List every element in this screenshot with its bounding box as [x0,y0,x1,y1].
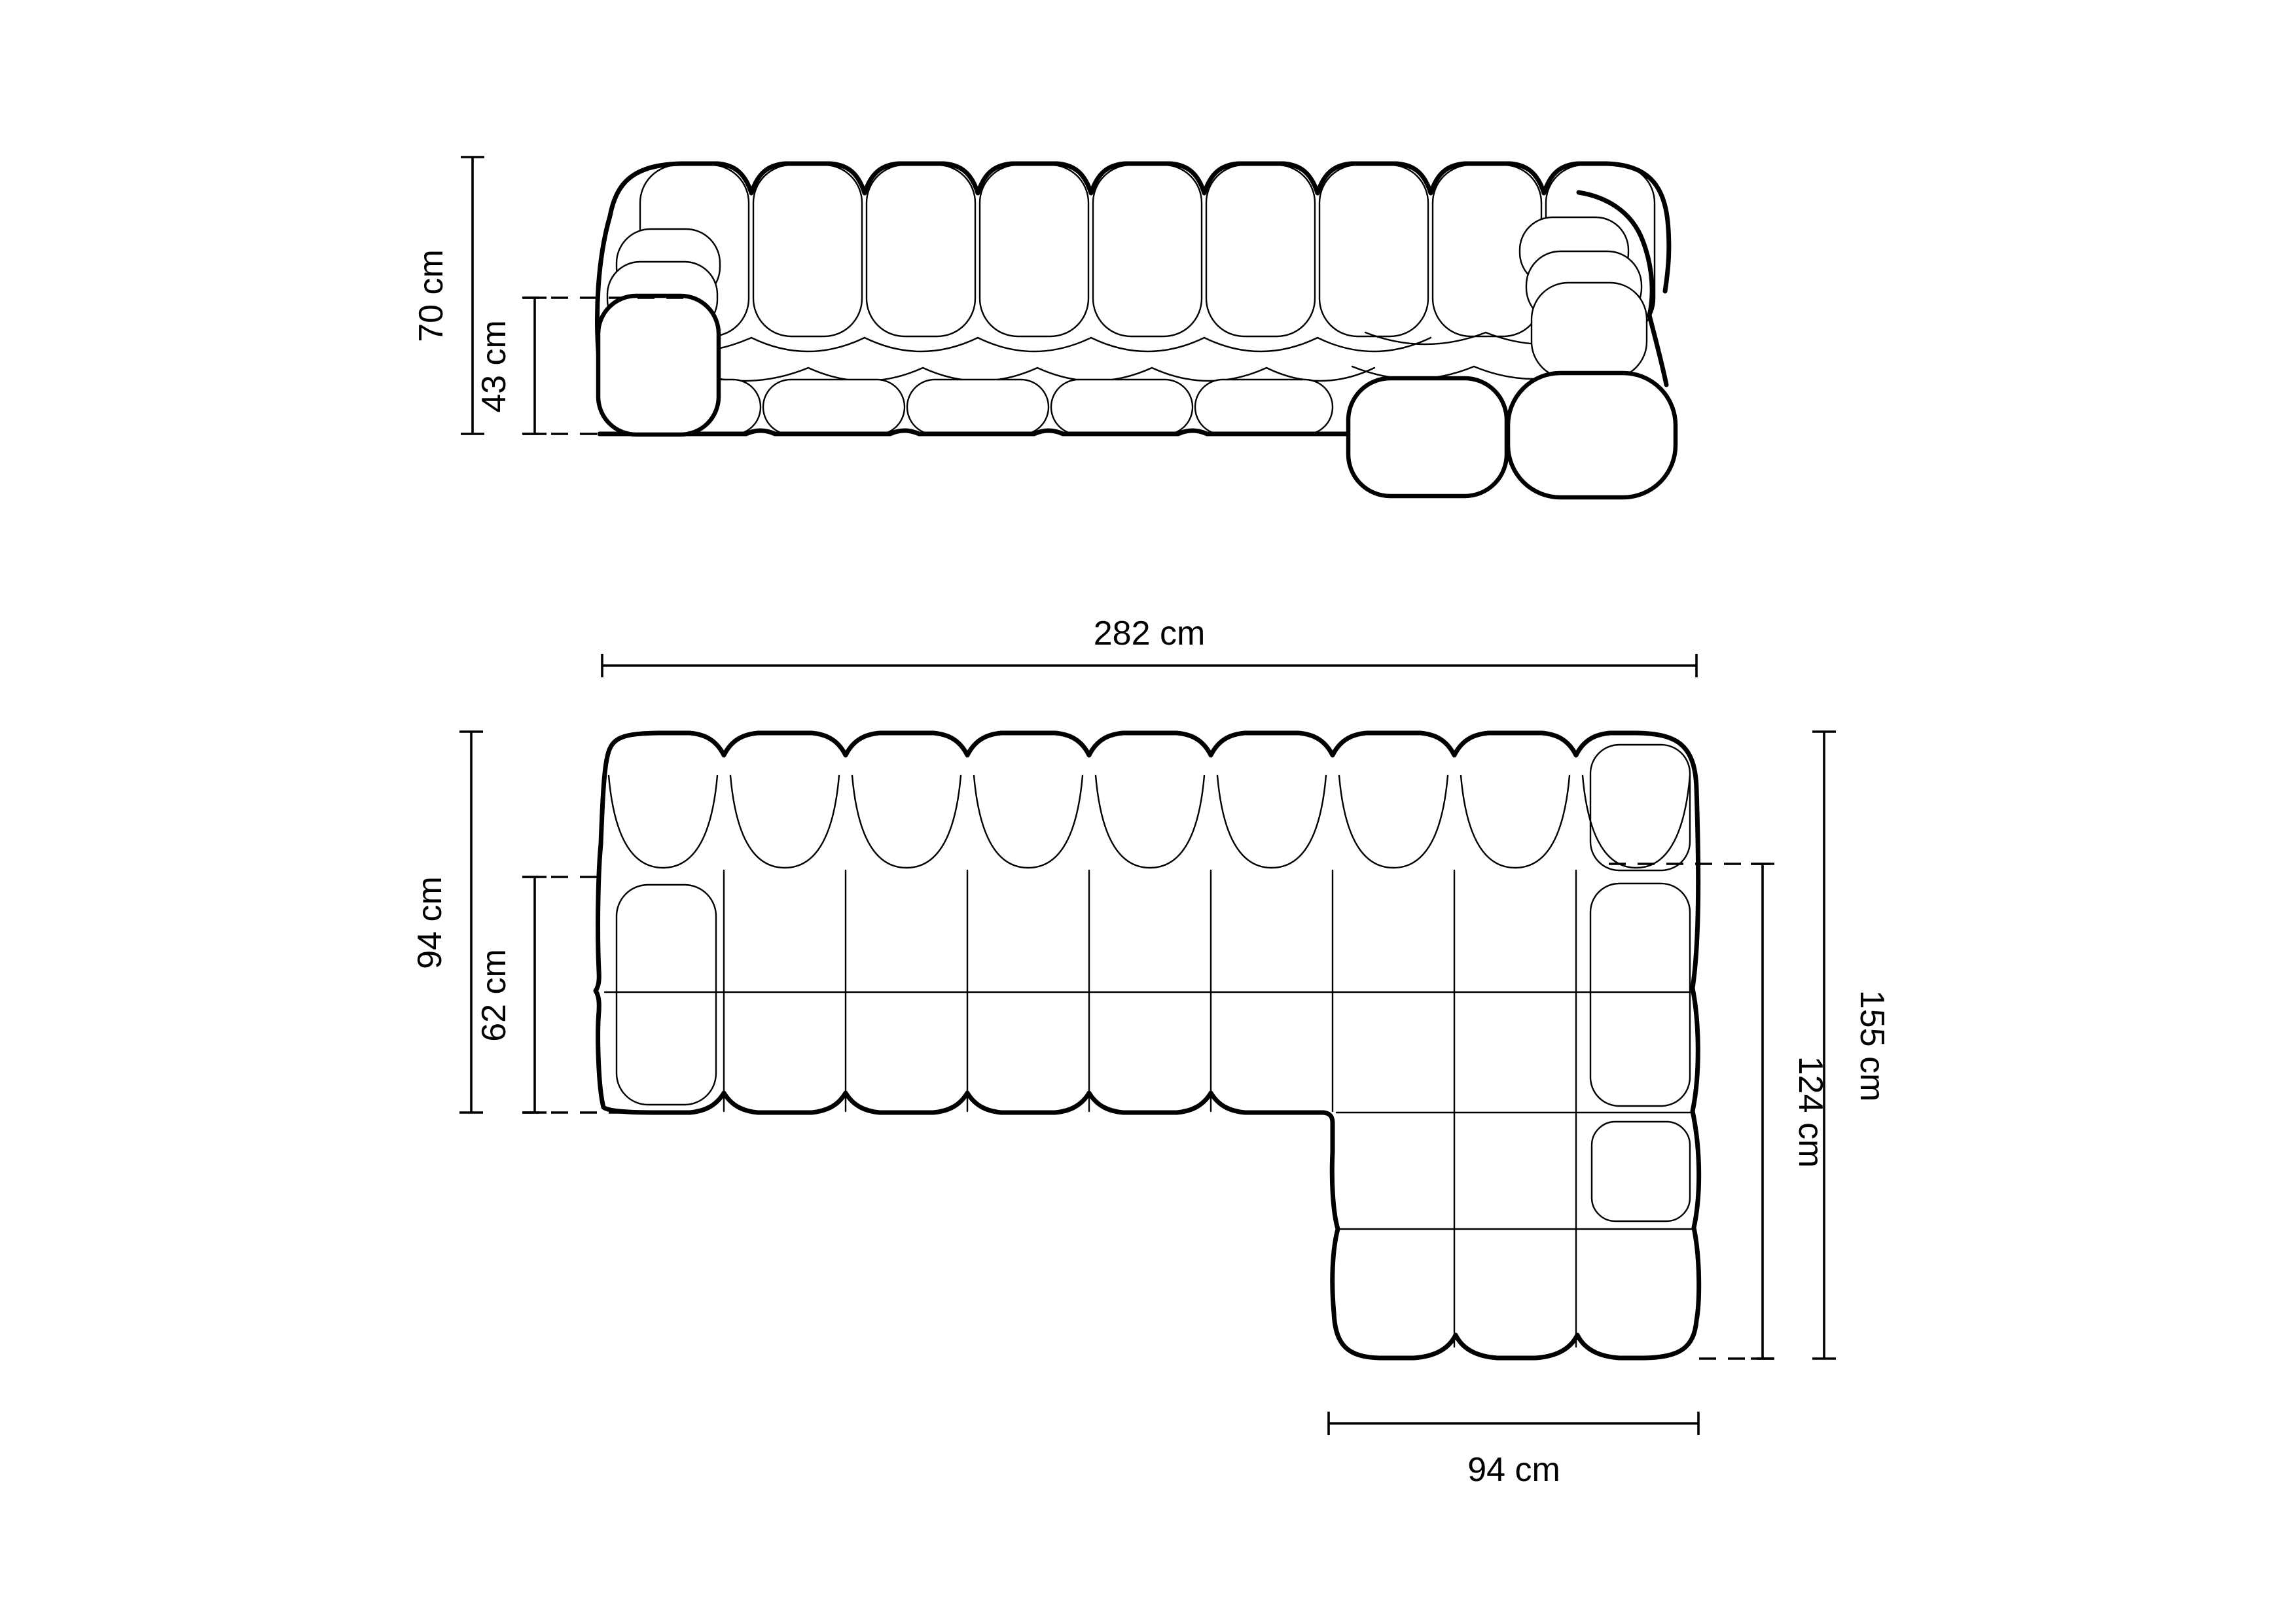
dimension-line [1751,864,1774,1359]
seat-cushion [763,380,905,435]
dim-label-chaise-width: 94 cm [1467,1451,1560,1489]
left-armrest-front [598,229,720,435]
dimension-line [602,654,1696,677]
dimension-line [523,877,547,1113]
top-plan-view [596,733,1699,1358]
chaise-front-cushions [1348,373,1676,497]
dimension-overall-height: 70 cm [412,157,484,434]
backrest-cushion [1319,165,1428,336]
seat-cushion [907,380,1049,435]
diagram-canvas: 70 cm 43 cm 282 cm 94 cm 62 cm 155 cm [0,0,2296,1623]
dimension-line [1812,732,1836,1359]
backrest-cushion [1206,165,1315,336]
dimension-seat-height: 43 cm [475,298,547,434]
left-armrest-front-lobe [598,296,719,435]
dimension-right-side-total: 155 cm [1812,732,1891,1359]
dim-label-right-side-total: 155 cm [1853,990,1891,1102]
sofa-dimensions-diagram: 70 cm 43 cm 282 cm 94 cm 62 cm 155 cm [0,0,2296,1623]
backrest-cushion [980,165,1088,336]
seat-cushions-front [619,380,1333,435]
chaise-cushion [1348,378,1507,496]
dim-label-seat-height: 43 cm [475,320,513,413]
dimension-chaise-width: 94 cm [1329,1412,1698,1489]
dim-label-overall-height: 70 cm [412,249,450,342]
dimension-chaise-extent: 124 cm [1751,864,1829,1359]
dimension-overall-depth: 94 cm [411,732,483,1113]
dimension-seat-depth: 62 cm [475,877,547,1113]
backrest-cushion [1093,165,1202,336]
plan-module-seams-vertical [724,870,1576,1347]
chaise-cushion [1508,373,1676,497]
dim-label-overall-depth: 94 cm [411,876,449,969]
dim-label-overall-width: 282 cm [1094,615,1206,652]
dimension-overall-width: 282 cm [602,615,1696,677]
right-armrest-front [1520,217,1647,378]
seat-cushion [1195,380,1333,435]
dim-label-chaise-extent: 124 cm [1791,1056,1829,1168]
front-elevation-view [598,164,1676,497]
backrest-cushions-front [640,165,1655,336]
plan-left-armrest-seam [617,885,716,1105]
backrest-cushion [867,165,975,336]
tufting-seam-row [622,338,1431,352]
right-armrest-front-lobe [1532,283,1647,378]
plan-outer-outline [596,733,1699,1358]
backrest-cushion [753,165,862,336]
plan-backrest-arcs [609,776,1690,868]
dim-label-seat-depth: 62 cm [475,949,513,1042]
plan-chaise-right-seam-upper [1590,883,1690,1106]
dimension-line [459,732,483,1113]
dimension-line [523,298,547,434]
dimension-line [1329,1412,1698,1435]
seat-cushion [1051,380,1193,435]
plan-chaise-right-seam-lower [1592,1122,1690,1221]
